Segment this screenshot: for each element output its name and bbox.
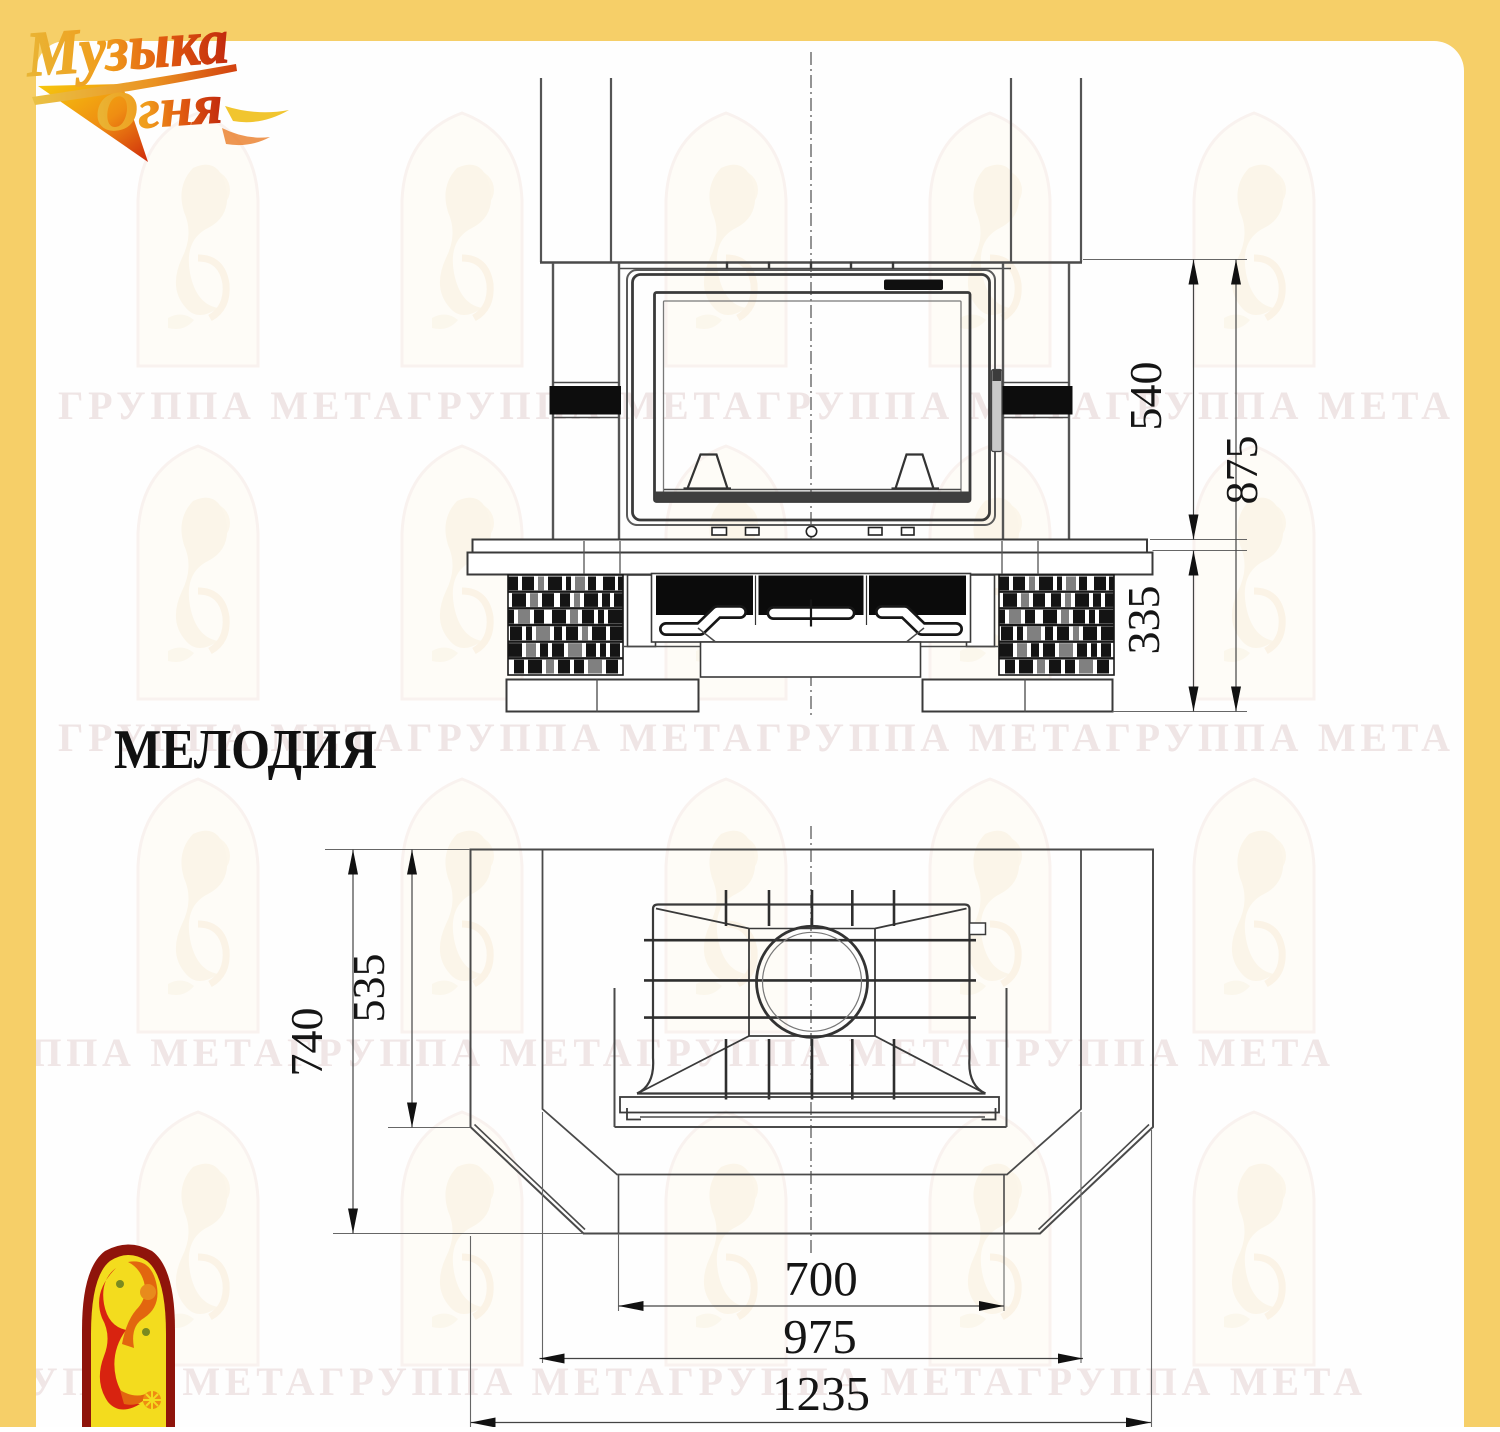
svg-text:Огня: Огня (94, 73, 225, 143)
svg-text:875: 875 (1216, 436, 1267, 505)
svg-text:975: 975 (783, 1309, 857, 1364)
svg-text:740: 740 (281, 1008, 332, 1077)
svg-text:535: 535 (343, 954, 394, 1023)
svg-text:МЕЛОДИЯ: МЕЛОДИЯ (114, 719, 377, 781)
svg-text:335: 335 (1118, 586, 1169, 655)
svg-text:1235: 1235 (772, 1366, 870, 1421)
svg-text:540: 540 (1120, 362, 1171, 431)
svg-text:ГРУППА МЕТАГРУППА МЕТАГРУППА М: ГРУППА МЕТАГРУППА МЕТАГРУППА МЕТАГРУППА … (0, 1359, 1362, 1404)
svg-text:700: 700 (784, 1251, 858, 1306)
